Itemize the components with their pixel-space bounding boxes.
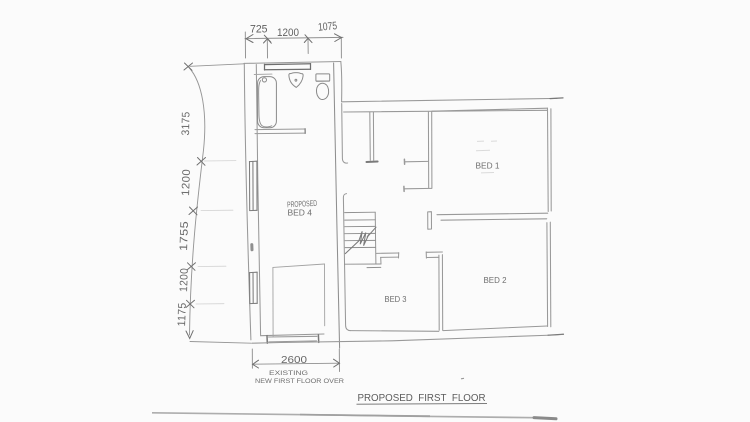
svg-text:PROPOSED FIRST FLOOR: PROPOSED FIRST FLOOR — [358, 393, 486, 404]
svg-text:1175: 1175 — [176, 302, 189, 326]
svg-text:BED 3: BED 3 — [385, 295, 407, 304]
svg-text:1200: 1200 — [277, 27, 299, 39]
svg-text:1755: 1755 — [178, 221, 191, 251]
svg-text:3175: 3175 — [180, 111, 192, 135]
svg-text:EXISTING: EXISTING — [269, 370, 308, 377]
svg-text:725: 725 — [250, 24, 268, 36]
svg-text:2600: 2600 — [281, 354, 307, 366]
svg-text:NEW FIRST FLOOR OVER: NEW FIRST FLOOR OVER — [255, 378, 344, 385]
svg-text:BED 1: BED 1 — [476, 161, 500, 170]
svg-text:BED 2: BED 2 — [484, 276, 507, 285]
svg-text:1200: 1200 — [180, 169, 193, 196]
svg-text:1075: 1075 — [318, 20, 338, 34]
svg-text:1200: 1200 — [178, 268, 191, 292]
svg-text:BED 4: BED 4 — [288, 208, 313, 217]
